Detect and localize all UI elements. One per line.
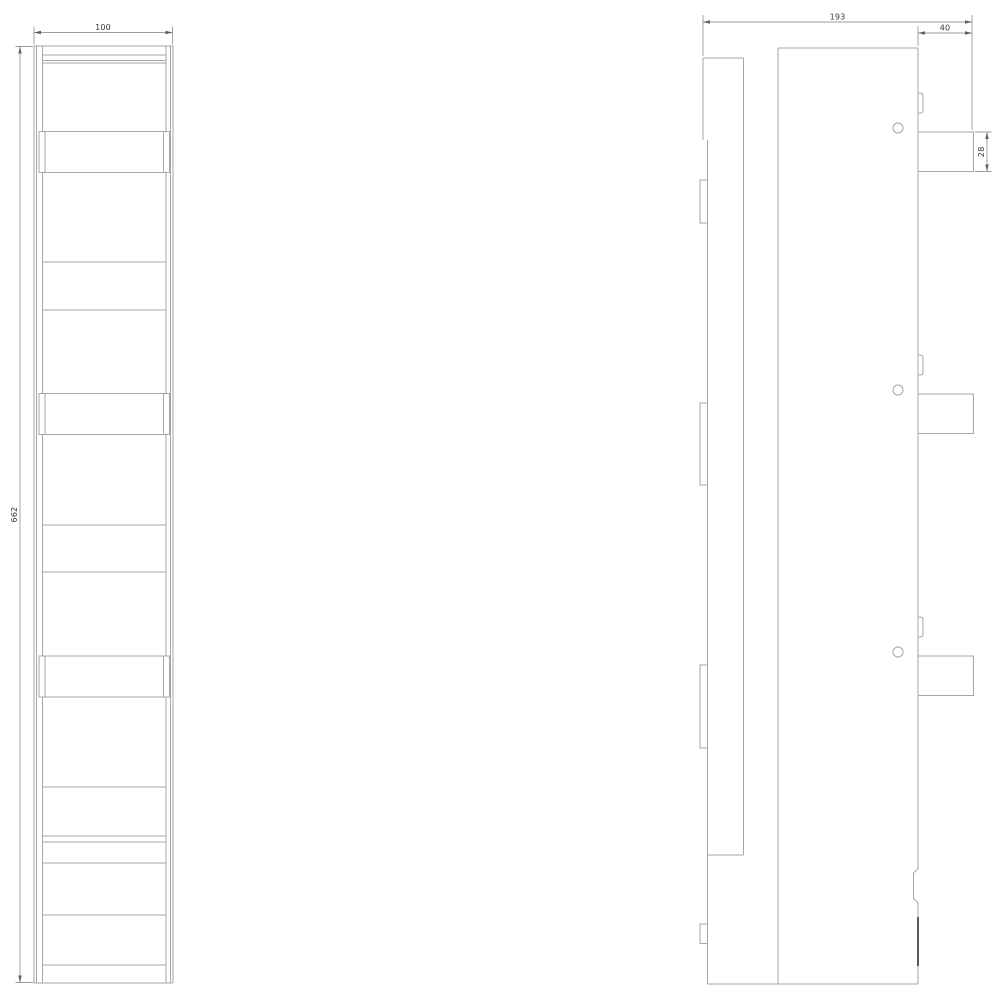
dim-terminal-height: 28 (975, 132, 992, 172)
clip-tab (918, 617, 923, 637)
terminal-tab (918, 394, 974, 434)
side-view (700, 48, 974, 984)
arrowhead (166, 31, 173, 34)
cover-band (39, 656, 170, 697)
drawing-page: 100 662 193 (0, 0, 1000, 1000)
arrowhead (18, 976, 21, 983)
arrowhead (965, 31, 972, 34)
arrowhead (985, 165, 988, 172)
dim-front-height: 662 (10, 47, 33, 983)
dimension-value: 662 (10, 507, 19, 523)
mounting-hole (893, 123, 903, 133)
cover-band (39, 394, 170, 435)
mounting-holes (893, 123, 903, 657)
cover-band (39, 132, 170, 173)
mount-bump (700, 403, 708, 485)
mount-bump (700, 924, 708, 944)
dimension-value: 28 (977, 147, 986, 158)
body-right-edge (914, 48, 919, 984)
dim-front-width: 100 (34, 23, 173, 45)
dim-terminal-width: 40 (918, 24, 972, 47)
terminal-tab (918, 656, 974, 696)
arrowhead (985, 132, 988, 139)
cover-band-middle (39, 394, 170, 435)
clip-tabs (918, 93, 923, 637)
dimension-value: 193 (830, 13, 846, 22)
arrowhead (34, 31, 41, 34)
terminal-tabs (918, 132, 974, 696)
arrowhead (18, 47, 21, 54)
clip-tab (918, 355, 923, 375)
dimension-value: 40 (940, 24, 951, 33)
technical-drawing: 100 662 193 (0, 0, 1000, 1000)
mount-bump (700, 665, 708, 748)
mounting-hole (893, 385, 903, 395)
mount-bump (700, 180, 708, 223)
dimension-value: 100 (95, 23, 111, 32)
arrowhead (703, 20, 710, 23)
mounting-hole (893, 647, 903, 657)
arrowhead (965, 20, 972, 23)
terminal-tab (918, 132, 974, 172)
cover-band-top (39, 132, 170, 173)
arrowhead (918, 31, 925, 34)
rear-mount-bumps (700, 180, 708, 944)
front-view (34, 46, 173, 983)
cover-band-bottom (39, 656, 170, 697)
clip-tab (918, 93, 923, 113)
